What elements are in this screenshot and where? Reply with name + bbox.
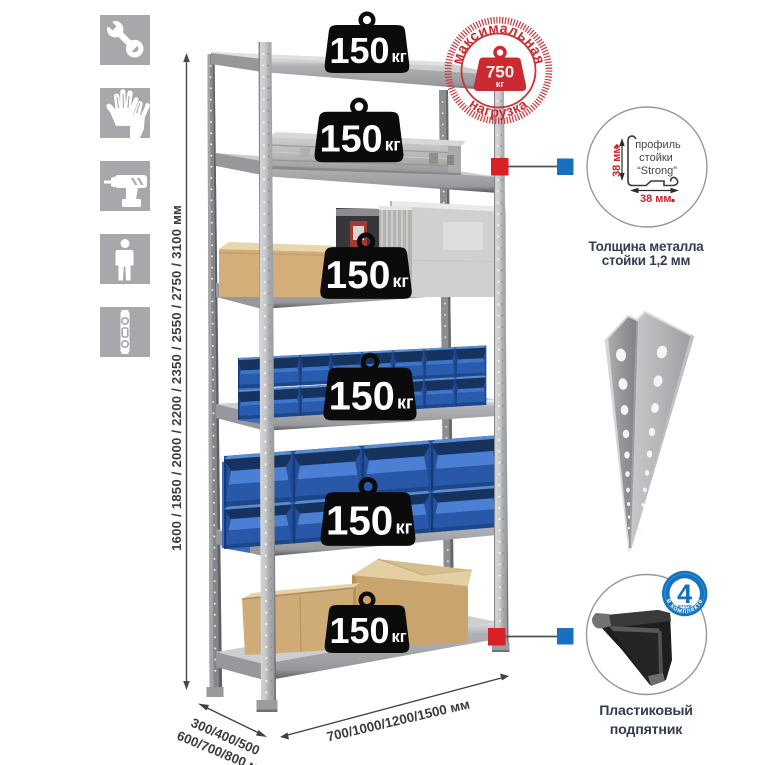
svg-text:38 мм: 38 мм: [640, 193, 672, 205]
svg-text:стойки: стойки: [639, 152, 673, 164]
svg-text:1600 / 1850 / 2000 / 2200 / 23: 1600 / 1850 / 2000 / 2200 / 2350 / 2550 …: [169, 205, 184, 551]
svg-text:38 мм: 38 мм: [611, 145, 623, 177]
svg-text:стойки 1,2 мм: стойки 1,2 мм: [602, 253, 690, 268]
svg-text:кг: кг: [496, 78, 505, 89]
svg-text:подпятник: подпятник: [610, 722, 684, 738]
svg-text:Пластиковый: Пластиковый: [599, 703, 693, 719]
svg-text:Толщина металла: Толщина металла: [588, 239, 704, 254]
svg-text:профиль: профиль: [635, 139, 681, 151]
svg-text:“Strong”: “Strong”: [637, 165, 677, 177]
